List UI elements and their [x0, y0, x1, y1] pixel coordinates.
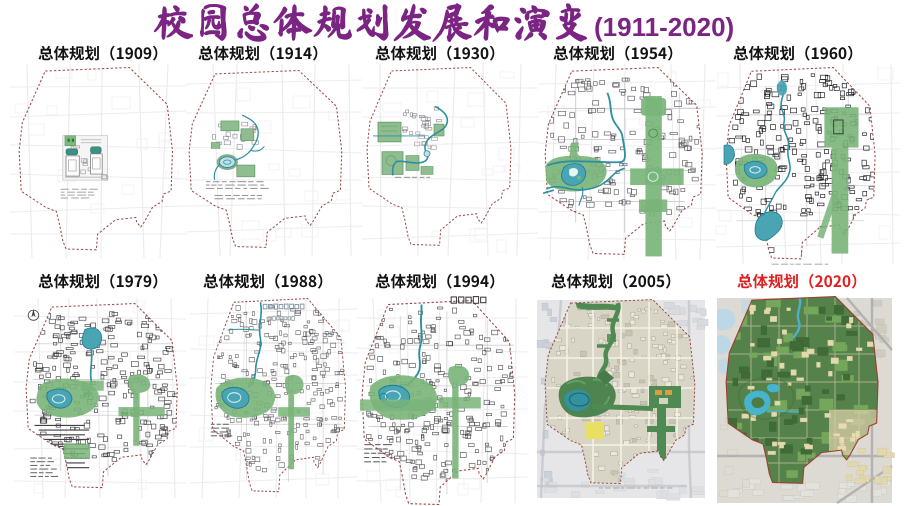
svg-text:(1911-2020): (1911-2020) — [594, 12, 734, 42]
